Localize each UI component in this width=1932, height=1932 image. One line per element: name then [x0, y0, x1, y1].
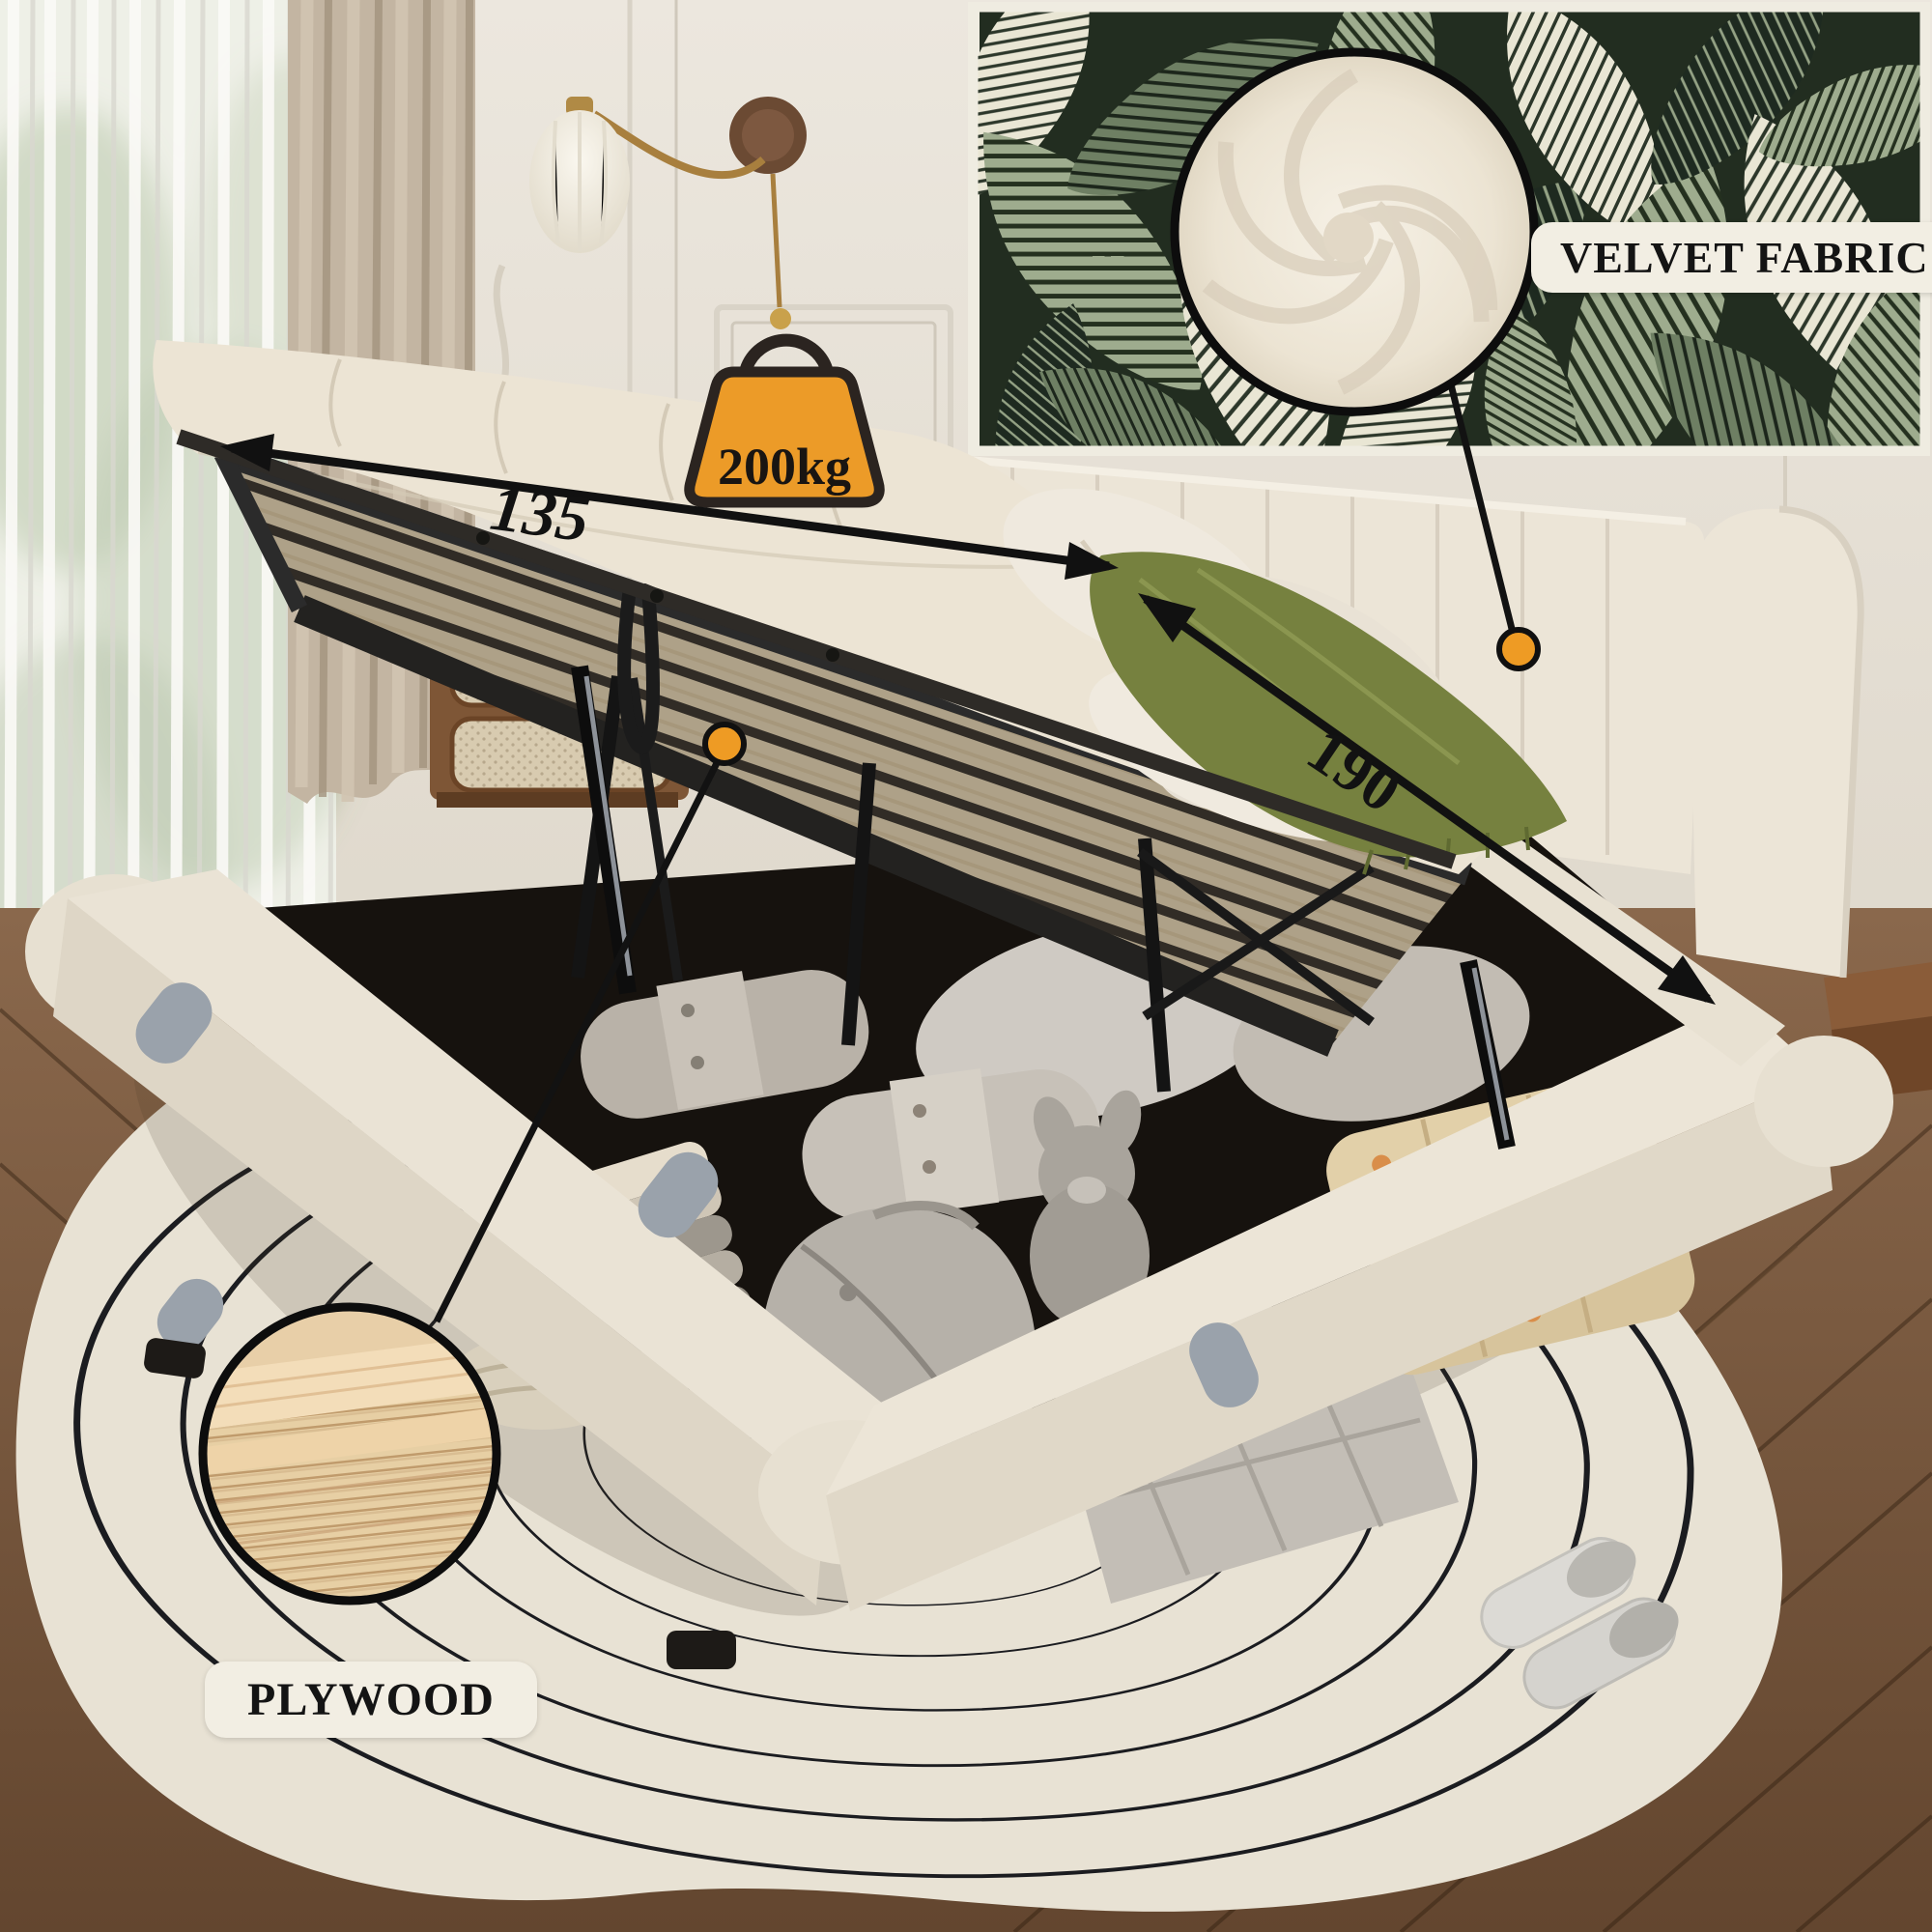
plywood-anchor-dot — [705, 724, 744, 763]
fabric-anchor-dot — [1499, 630, 1538, 668]
width-dimension-value: 135 — [486, 469, 593, 558]
max-load-value: 200kg — [697, 437, 871, 497]
plywood-label: PLYWOOD — [205, 1662, 537, 1738]
headboard-side-bolster — [1689, 509, 1861, 978]
bedroom-product-photo: VELVET FABRIC PLYWOOD 200kg 135 190 — [0, 0, 1932, 1932]
velvet-fabric-label: VELVET FABRIC — [1531, 222, 1932, 293]
velvet-swatch-circle — [1175, 52, 1534, 412]
